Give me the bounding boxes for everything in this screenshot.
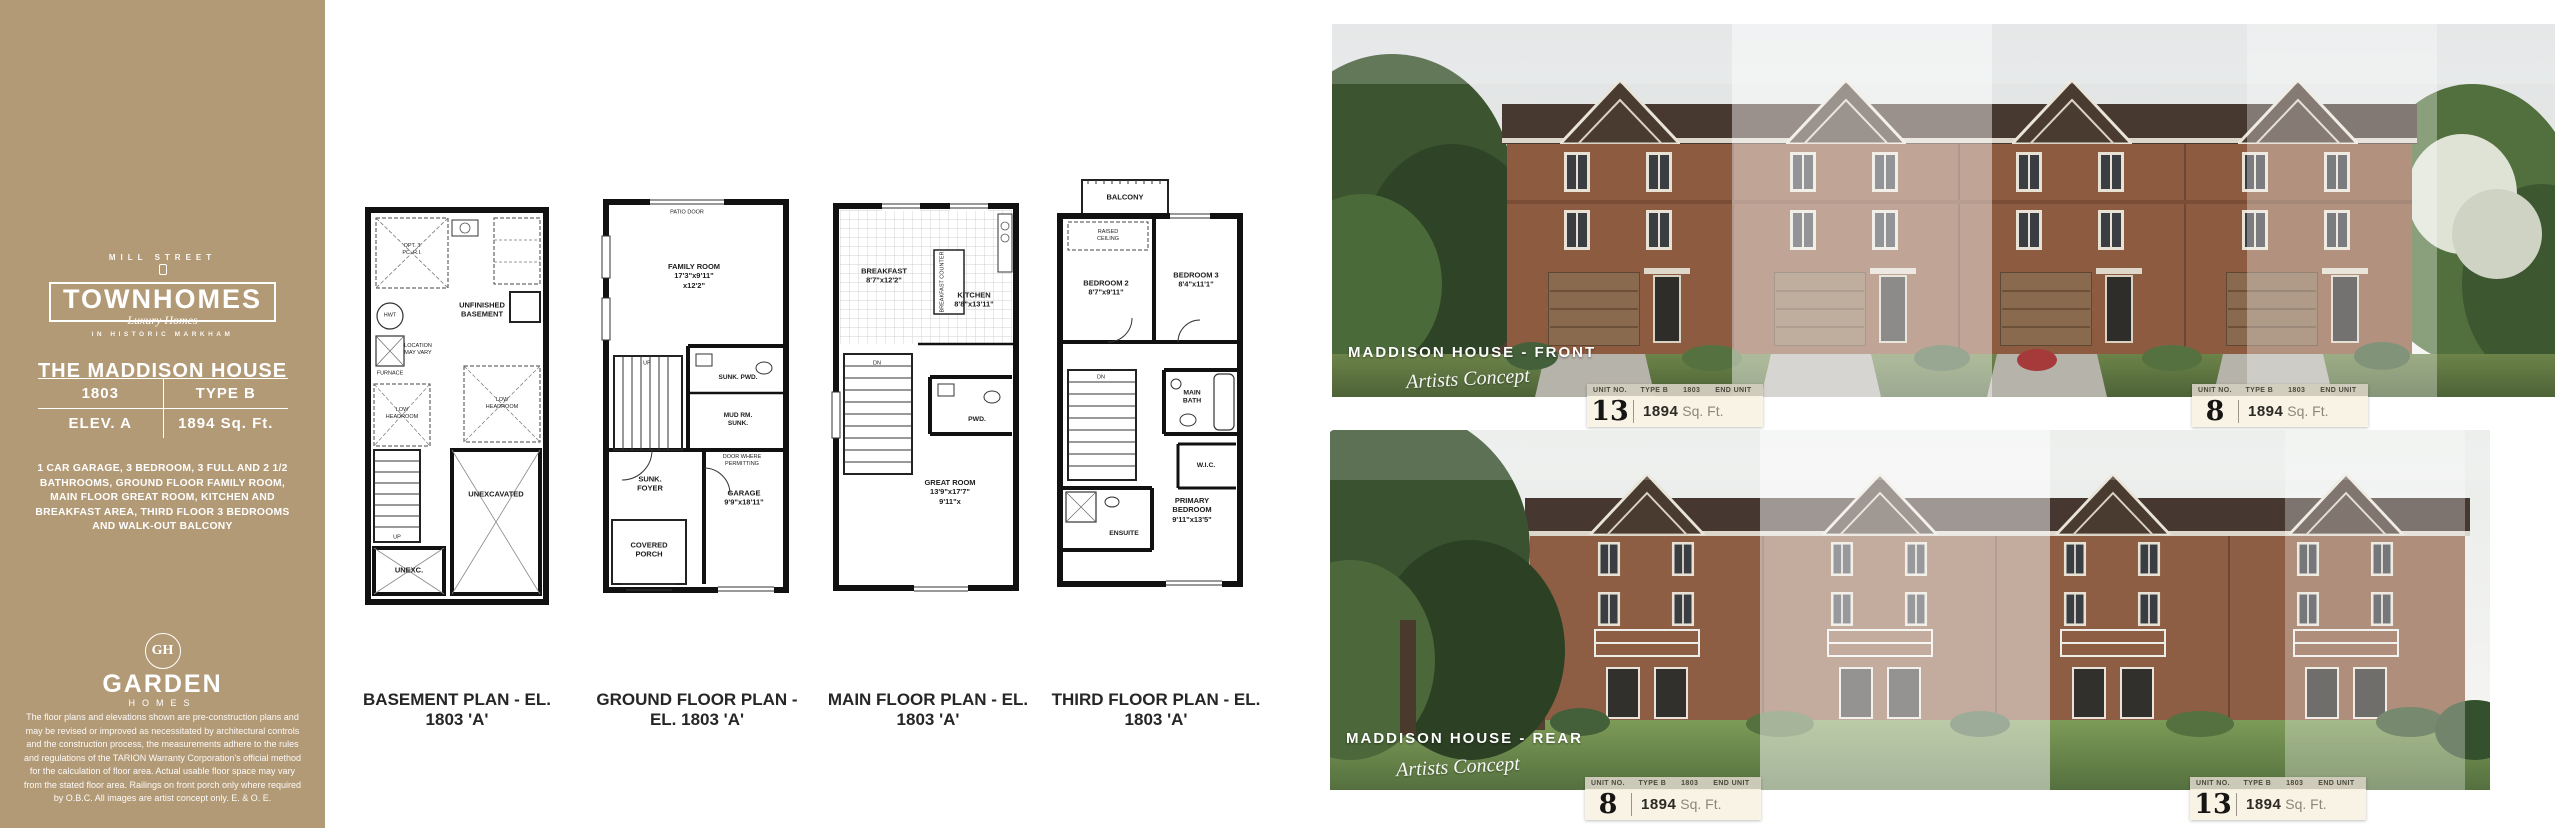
badge-model: 1803 — [1681, 780, 1698, 787]
area-unit: Sq. Ft. — [1680, 796, 1721, 812]
area-value: 1894 — [2248, 403, 2283, 420]
badge-end-unit: END UNIT — [1713, 780, 1749, 787]
basement-floor-plan: OPT. 3 PC. R.I. HWT FURNACE UNFINISHED B… — [352, 198, 562, 616]
third-floor-plan: BALCONY RAISED CEILING BEDROOM 2 8'7"x9'… — [1046, 172, 1256, 612]
room-label-up: UP — [393, 535, 401, 542]
room-label-wic: W.I.C. — [1197, 462, 1216, 470]
room-label-low-headroom: LOW HEADROOM — [486, 397, 518, 411]
room-label-unexcavated: UNEXCAVATED — [468, 489, 523, 498]
unit-badge-header: UNIT NO. TYPE B1803END UNIT — [1587, 384, 1763, 396]
room-label-mud-rm: MUD RM. SUNK. — [724, 412, 753, 428]
badge-end-unit: END UNIT — [1715, 387, 1751, 394]
builder-subname: HOMES — [0, 698, 325, 708]
room-label-sunk-foyer: SUNK. FOYER — [637, 475, 663, 494]
room-label-dn: DN — [1097, 375, 1105, 382]
room-label-balcony: BALCONY — [1106, 192, 1143, 201]
badge-type: TYPE B — [2243, 780, 2271, 787]
badge-end-unit: END UNIT — [2320, 387, 2356, 394]
spec-area: 1894 Sq. Ft. — [164, 409, 289, 438]
unit-number: 13 — [2190, 791, 2236, 818]
badge-type: TYPE B — [2245, 387, 2273, 394]
room-label-great-room: GREAT ROOM 13'9"x17'7" 9'11"x — [924, 478, 975, 506]
room-label-kitchen: KITCHEN 8'8"x13'11" — [954, 291, 993, 310]
badge-unit-no-label: UNIT NO. — [1587, 387, 1633, 394]
spec-table: 1803 TYPE B ELEV. A 1894 Sq. Ft. — [38, 378, 288, 438]
ground-floor-plan: PATIO DOOR FAMILY ROOM 17'3"x9'11" x12'2… — [592, 188, 802, 608]
room-label-raised-ceiling: RAISED CEILING — [1097, 229, 1119, 243]
room-label-unexc: UNEXC. — [395, 565, 423, 574]
unit-badge-rear-left: UNIT NO. TYPE B1803END UNIT 8 1894 Sq. F… — [1585, 777, 1761, 820]
badge-end-unit: END UNIT — [2318, 780, 2354, 787]
badge-type: TYPE B — [1638, 780, 1666, 787]
legal-disclaimer: The floor plans and elevations shown are… — [20, 711, 305, 806]
front-render-title: MADDISON HOUSE - FRONT — [1348, 344, 1596, 361]
badge-unit-no-label: UNIT NO. — [2192, 387, 2238, 394]
area-value: 1894 — [1643, 403, 1678, 420]
area-value: 1894 — [2246, 796, 2281, 813]
unit-badge-front-left: UNIT NO. TYPE B1803END UNIT 13 1894 Sq. … — [1587, 384, 1763, 427]
room-label-bedroom2: BEDROOM 2 8'7"x9'11" — [1083, 279, 1128, 298]
spec-model: 1803 — [38, 379, 164, 408]
unit-badge-front-right: UNIT NO. TYPE B1803END UNIT 8 1894 Sq. F… — [2192, 384, 2368, 427]
room-label-garage: GARAGE 9'9"x18'11" — [724, 489, 763, 508]
logo-mill-street: MILL STREET — [0, 253, 325, 262]
room-label-sunk-pwd: SUNK. PWD. — [719, 374, 758, 382]
room-label-furnace: FURNACE — [377, 371, 404, 378]
room-label-dn: DN — [873, 361, 881, 368]
room-label-hwt: HWT — [384, 313, 397, 320]
area-unit: Sq. Ft. — [2285, 796, 2326, 812]
area-unit: Sq. Ft. — [1682, 403, 1723, 419]
room-label-main-bath: MAIN BATH — [1183, 390, 1201, 407]
badge-type: TYPE B — [1640, 387, 1668, 394]
unit-number: 8 — [2192, 398, 2238, 425]
garden-homes-logo: GH GARDEN HOMES — [0, 633, 325, 708]
main-plan-drawing — [822, 192, 1032, 602]
badge-unit-no-label: UNIT NO. — [2190, 780, 2236, 787]
brochure-page: MILL STREET TOWNHOMES Luxury Homes IN HI… — [0, 0, 2560, 828]
room-label-low-headroom: LOW HEADROOM — [386, 407, 418, 421]
room-label-breakfast-counter: BREAKFAST COUNTER — [940, 251, 947, 312]
ground-plan-caption: GROUND FLOOR PLAN - EL. 1803 'A' — [586, 690, 808, 730]
badge-model: 1803 — [1683, 387, 1700, 394]
basement-plan-caption: BASEMENT PLAN - EL. 1803 'A' — [352, 690, 562, 730]
sidebar: MILL STREET TOWNHOMES Luxury Homes IN HI… — [0, 0, 325, 828]
badge-model: 1803 — [2288, 387, 2305, 394]
room-label-door-note: DOOR WHERE PERMITTING — [723, 454, 762, 468]
badge-unit-no-label: UNIT NO. — [1585, 780, 1631, 787]
room-label-location-may-vary: LOCATION MAY VARY — [404, 343, 432, 357]
ground-plan-drawing — [592, 188, 802, 608]
front-rendering: MADDISON HOUSE - FRONT Artists Concept U… — [1332, 24, 2555, 397]
room-label-opt-bath: OPT. 3 PC. R.I. — [402, 243, 421, 257]
third-plan-drawing — [1046, 172, 1256, 612]
logo-subtitle: IN HISTORIC MARKHAM — [0, 331, 325, 338]
room-label-pwd: PWD. — [968, 416, 986, 424]
home-description: 1 CAR GARAGE, 3 BEDROOM, 3 FULL AND 2 1/… — [26, 462, 299, 534]
area-value: 1894 — [1641, 796, 1676, 813]
room-label-breakfast: BREAKFAST 8'7"x12'2" — [861, 267, 907, 286]
builder-name: GARDEN — [0, 671, 325, 697]
spec-elevation: ELEV. A — [38, 409, 164, 438]
room-label-up: UP — [643, 361, 651, 368]
unit-number: 13 — [1587, 398, 1633, 425]
room-label-primary-bedroom: PRIMARY BEDROOM 9'11"x13'5" — [1172, 496, 1211, 524]
unit-badge-header: UNIT NO. TYPE B1803END UNIT — [1585, 777, 1761, 789]
unit-number: 8 — [1585, 791, 1631, 818]
spec-row: ELEV. A 1894 Sq. Ft. — [38, 409, 288, 438]
badge-model: 1803 — [2286, 780, 2303, 787]
gh-monogram-icon: GH — [145, 633, 181, 669]
third-plan-caption: THIRD FLOOR PLAN - EL. 1803 'A' — [1042, 690, 1270, 730]
rear-render-title: MADDISON HOUSE - REAR — [1346, 730, 1583, 747]
area-unit: Sq. Ft. — [2287, 403, 2328, 419]
basement-plan-drawing — [352, 198, 562, 616]
main-plan-caption: MAIN FLOOR PLAN - EL. 1803 'A' — [822, 690, 1034, 730]
front-rendering-image — [1332, 24, 2555, 397]
room-label-covered-porch: COVERED PORCH — [630, 541, 667, 560]
townhomes-logo: MILL STREET TOWNHOMES Luxury Homes IN HI… — [0, 253, 325, 338]
room-label-unfinished-basement: UNFINISHED BASEMENT — [459, 301, 505, 320]
unit-badge-header: UNIT NO. TYPE B1803END UNIT — [2190, 777, 2366, 789]
room-label-family-room: FAMILY ROOM 17'3"x9'11" x12'2" — [668, 262, 720, 290]
room-label-patio-door: PATIO DOOR — [670, 210, 704, 217]
unit-badge-rear-right: UNIT NO. TYPE B1803END UNIT 13 1894 Sq. … — [2190, 777, 2366, 820]
unit-badge-header: UNIT NO. TYPE B1803END UNIT — [2192, 384, 2368, 396]
rear-rendering: MADDISON HOUSE - REAR Artists Concept UN… — [1330, 430, 2490, 790]
main-floor-plan: BREAKFAST 8'7"x12'2" KITCHEN 8'8"x13'11"… — [822, 192, 1032, 602]
room-label-ensuite: ENSUITE — [1109, 530, 1138, 538]
spec-row: 1803 TYPE B — [38, 379, 288, 409]
spec-type: TYPE B — [164, 379, 289, 408]
lantern-icon — [159, 264, 167, 275]
room-label-bedroom3: BEDROOM 3 8'4"x11'1" — [1173, 271, 1218, 290]
